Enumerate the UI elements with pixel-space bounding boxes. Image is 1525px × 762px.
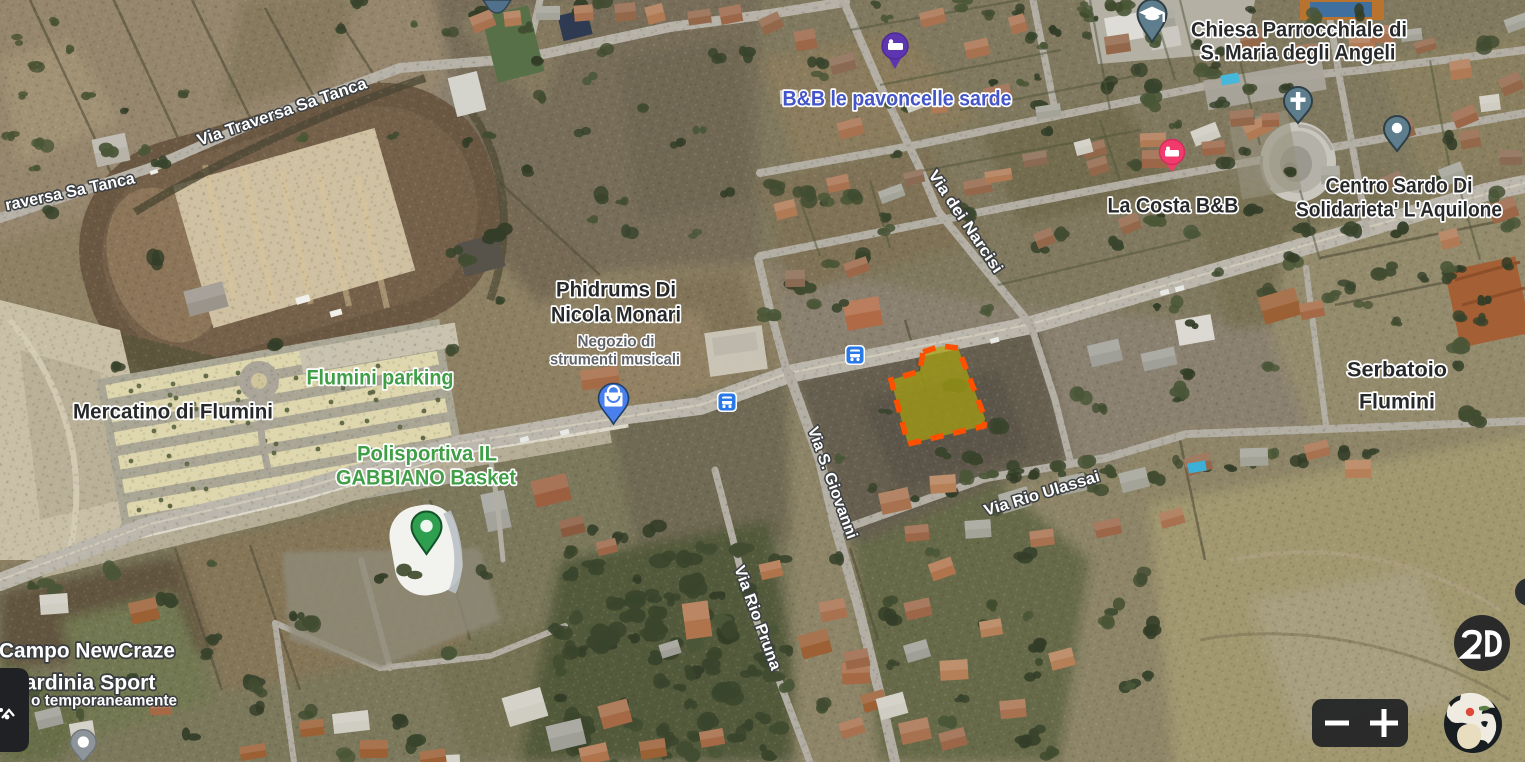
svg-text:S. Maria degli Angeli: S. Maria degli Angeli [1201, 42, 1396, 65]
svg-text:Phidrums Di: Phidrums Di [556, 279, 676, 302]
svg-text:B&B le pavoncelle sarde: B&B le pavoncelle sarde [783, 88, 1012, 111]
svg-text:strumenti musicali: strumenti musicali [550, 352, 680, 369]
svg-text:La Costa B&B: La Costa B&B [1108, 195, 1239, 218]
svg-text:Sardinia Sport: Sardinia Sport [11, 672, 156, 695]
svg-text:Centro Sardo Di: Centro Sardo Di [1326, 175, 1473, 198]
svg-text:Serbatoio: Serbatoio [1347, 359, 1447, 382]
svg-text:Flumini parking: Flumini parking [307, 367, 454, 390]
svg-text:GABBIANO Basket: GABBIANO Basket [336, 467, 516, 490]
svg-text:Flumini: Flumini [1359, 391, 1435, 414]
svg-text:Campo NewCraze: Campo NewCraze [0, 640, 175, 663]
svg-text:Polisportiva IL: Polisportiva IL [357, 443, 497, 466]
svg-text:Chiesa Parrocchiale di: Chiesa Parrocchiale di [1191, 19, 1407, 42]
svg-text:Negozio di: Negozio di [578, 334, 655, 351]
svg-text:Mercatino di Flumini: Mercatino di Flumini [73, 401, 273, 424]
svg-text:o temporaneamente: o temporaneamente [31, 693, 177, 710]
svg-text:Solidarieta' L'Aquilone: Solidarieta' L'Aquilone [1296, 199, 1502, 222]
svg-text:Nicola Monari: Nicola Monari [551, 304, 681, 327]
